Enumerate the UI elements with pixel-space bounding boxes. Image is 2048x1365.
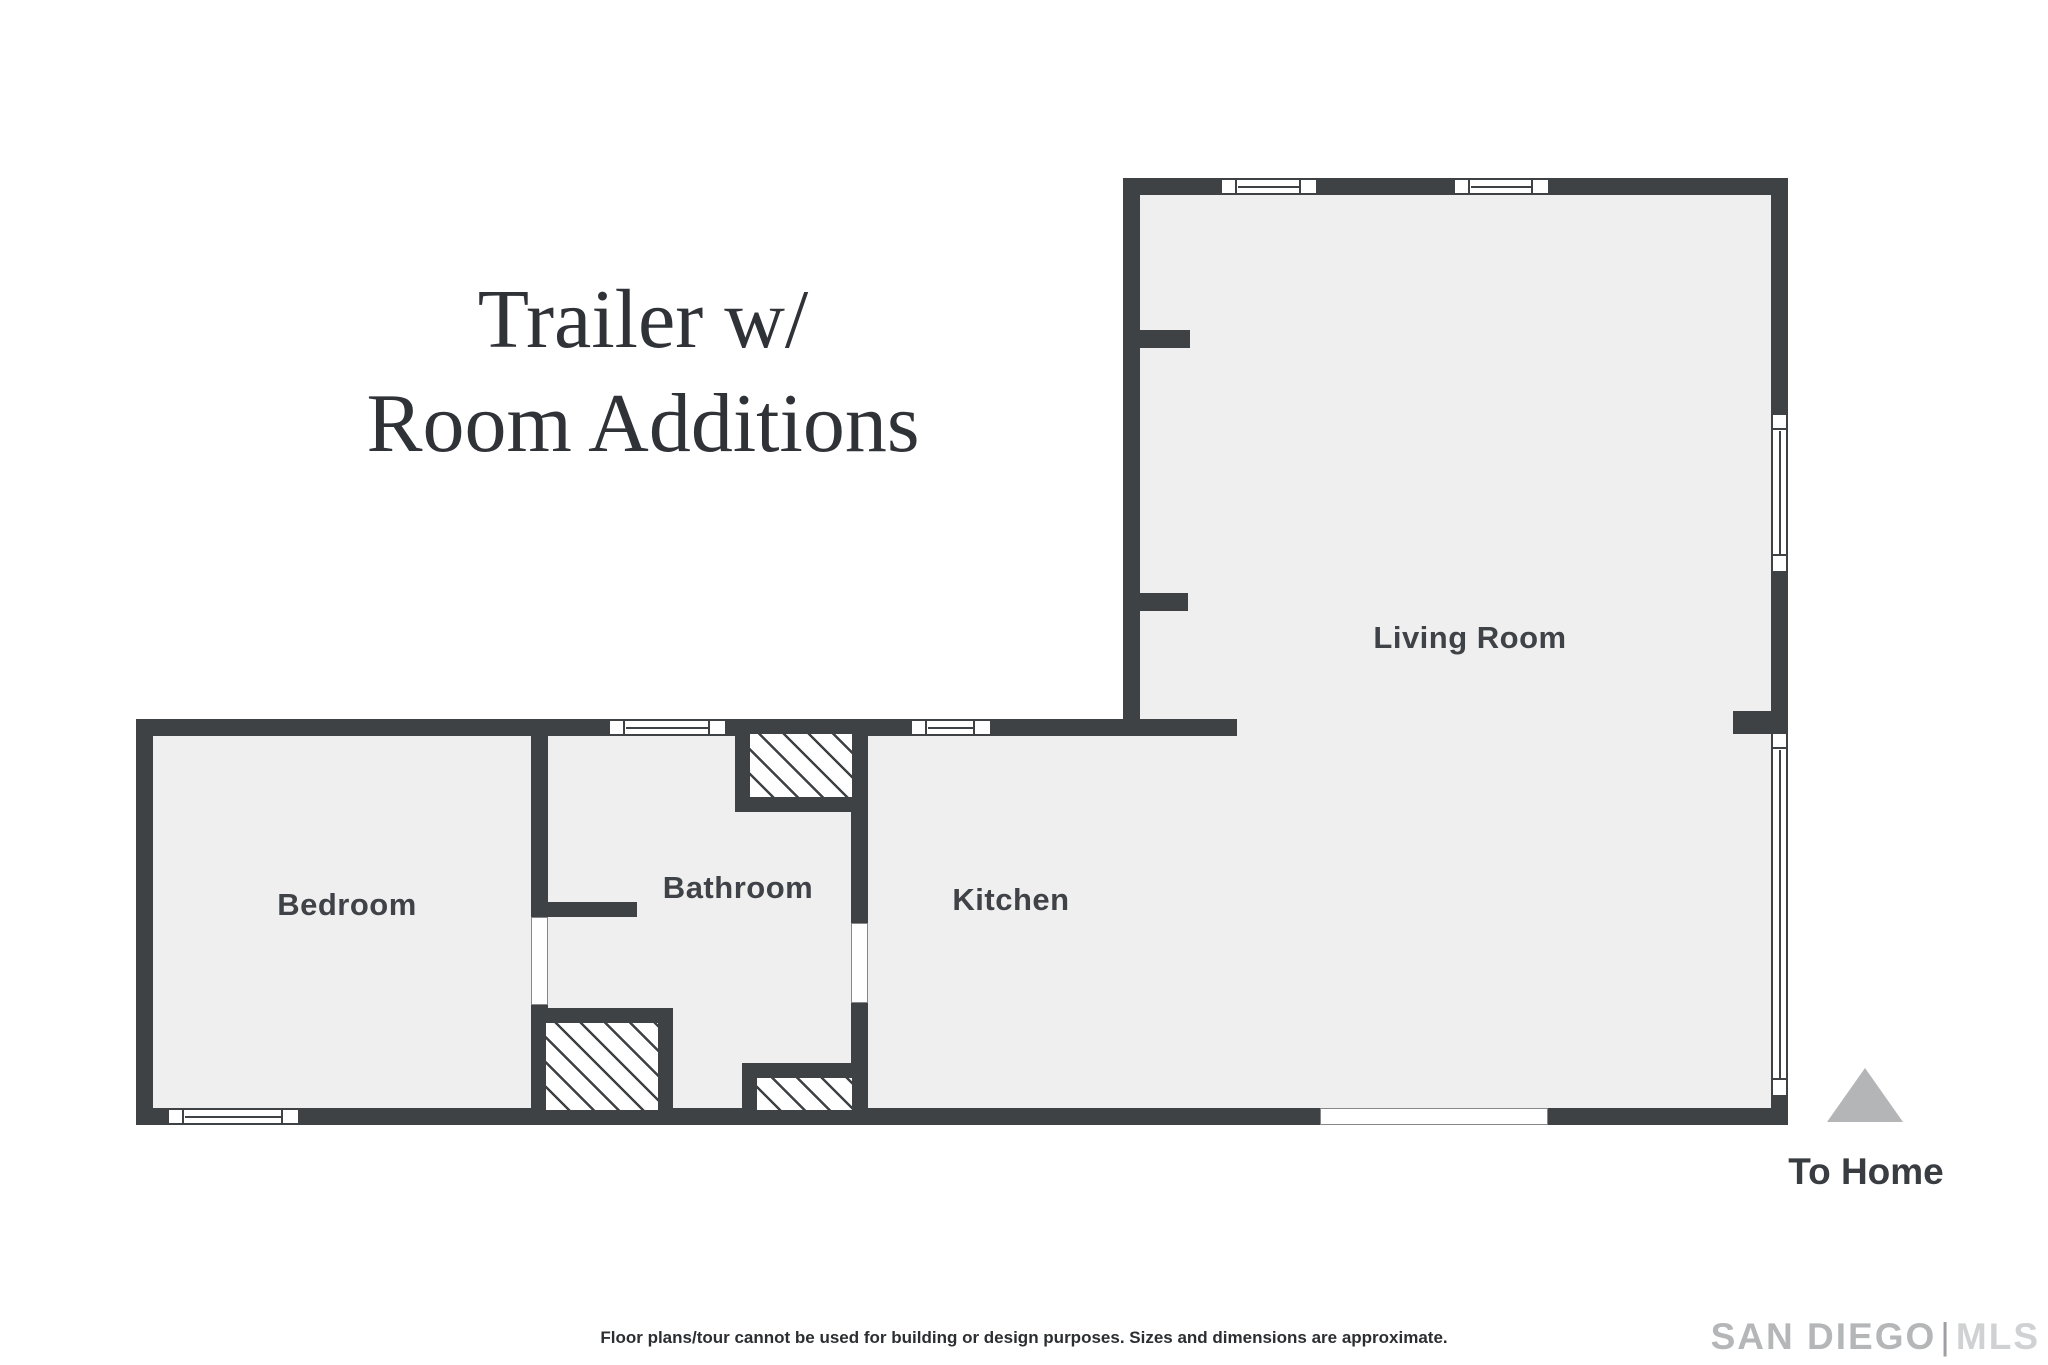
wall-living-room-left [1123,178,1140,736]
window-living-right-lower [1771,732,1788,1097]
window-living-top-1 [1220,178,1318,195]
window-living-right-upper [1771,413,1788,573]
to-home-label: To Home [1788,1151,1944,1193]
room-label-bedroom: Bedroom [277,887,417,923]
wall-bedroom-bathroom-upper [531,736,548,917]
door-bathroom-kitchen [851,923,868,1003]
door-bedroom-bathroom [531,917,548,1005]
wall-bathroom-stub [548,902,637,917]
hatch-water-heater [735,719,867,812]
floor-plan-page: { "title": { "line1": "Trailer w/", "lin… [0,0,2048,1365]
room-label-kitchen: Kitchen [952,882,1069,918]
wall-stub-living-left-upper [1140,330,1190,348]
hatch-bathroom-right [742,1063,867,1125]
plan-title-line2: Room Additions [366,372,919,476]
room-label-bathroom: Bathroom [663,870,813,906]
mls-logo-divider: | [1936,1316,1956,1357]
plan-title: Trailer w/ Room Additions [366,268,919,476]
hatch-bathroom-left [531,1008,673,1125]
wall-bedroom-left [136,719,153,1125]
window-bedroom-bottom [167,1108,300,1125]
room-label-living-room: Living Room [1373,620,1566,656]
window-bathroom-top [608,719,727,736]
window-kitchen-top [910,719,992,736]
to-home-triangle-icon [1827,1068,1903,1122]
mls-logo: SAN DIEGO|MLS [1711,1316,2040,1358]
window-living-top-2 [1453,178,1550,195]
opening-bottom-wall [1320,1108,1548,1125]
mls-logo-sandiego: SAN DIEGO [1711,1316,1937,1357]
footer-disclaimer: Floor plans/tour cannot be used for buil… [600,1328,1447,1348]
wall-stub-living-left-lower [1140,593,1188,611]
mls-logo-mls: MLS [1956,1316,2040,1357]
wall-stub-living-right [1733,711,1771,734]
plan-title-line1: Trailer w/ [366,268,919,372]
